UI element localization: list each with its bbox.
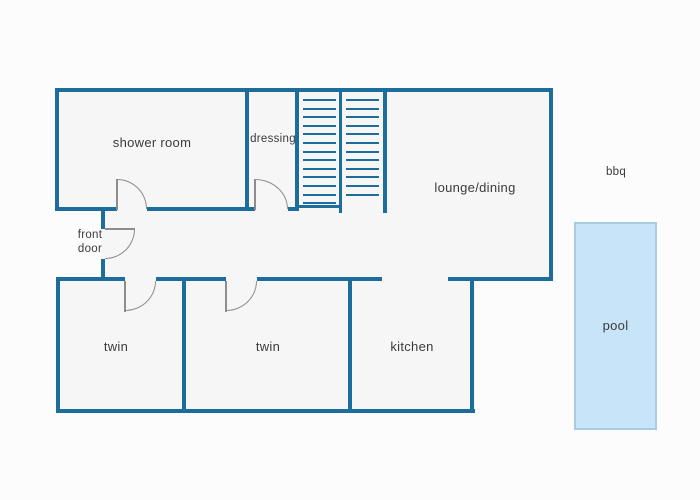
stair-tread [303, 168, 336, 170]
floor-plan: shower room dressing lounge/dining front… [0, 0, 700, 500]
stair-tread [346, 168, 379, 170]
stair-tread [303, 99, 336, 101]
wall-lounge-bottom-exterior [448, 277, 553, 281]
wall-kitchen-divider [348, 277, 352, 413]
label-front-door: front door [59, 229, 121, 256]
stair-tread [303, 194, 336, 196]
stair-tread [346, 142, 379, 144]
stair-tread [346, 125, 379, 127]
stair-tread [303, 202, 336, 204]
label-kitchen: kitchen [372, 340, 452, 354]
stair-tread [346, 185, 379, 187]
wall-rooms-top-b [156, 277, 226, 281]
stair-tread [303, 151, 336, 153]
stair-tread [303, 133, 336, 135]
stair-tread [346, 99, 379, 101]
stair-tread [303, 116, 336, 118]
wall-front-door-upper [101, 207, 105, 229]
stair-tread [303, 108, 336, 110]
stair-flight-2 [346, 99, 379, 197]
stair-tread [303, 176, 336, 178]
wall-rooms-top-c [257, 277, 382, 281]
wall-rooms-top-a [56, 277, 125, 281]
stair-flight-1 [303, 99, 336, 205]
wall-bottom-exterior [56, 409, 475, 413]
wall-top-exterior [55, 88, 553, 92]
wall-twin-divider [182, 277, 186, 413]
stair-tread [346, 108, 379, 110]
wall-stairs-right [383, 88, 387, 213]
floor-hallway-lounge [101, 207, 553, 281]
stair-tread [346, 194, 379, 196]
wall-left-lower-exterior [56, 277, 60, 413]
label-shower-room: shower room [92, 136, 212, 150]
stair-tread [346, 116, 379, 118]
stair-tread [346, 151, 379, 153]
pool: pool [574, 222, 657, 430]
label-lounge-dining: lounge/dining [415, 181, 535, 195]
wall-left-upper-exterior [55, 88, 59, 211]
wall-hall-top-b [147, 207, 245, 211]
label-pool: pool [603, 319, 629, 333]
wall-dressing-left [245, 88, 249, 211]
stair-tread [346, 176, 379, 178]
stair-tread [346, 133, 379, 135]
wall-stairs-cap [295, 205, 342, 208]
stair-tread [303, 185, 336, 187]
label-twin-left: twin [86, 340, 146, 354]
wall-hall-top-a [55, 207, 117, 211]
wall-stairs-middle [339, 88, 342, 213]
wall-stairs-left [295, 88, 299, 210]
label-twin-middle: twin [238, 340, 298, 354]
stair-tread [303, 125, 336, 127]
stair-tread [303, 159, 336, 161]
label-dressing: dressing [241, 132, 305, 146]
wall-lounge-right-exterior [549, 88, 553, 281]
stair-tread [346, 159, 379, 161]
wall-kitchen-right [470, 277, 474, 413]
label-bbq: bbq [586, 165, 646, 179]
stair-tread [303, 142, 336, 144]
